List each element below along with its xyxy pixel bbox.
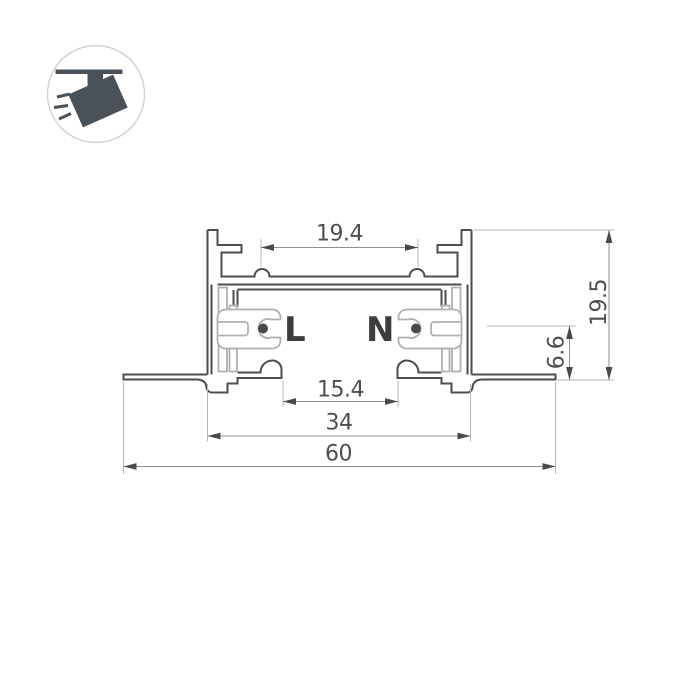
insulator-lower-leg — [230, 349, 238, 372]
wing-foot-and-lip — [124, 361, 282, 393]
conductor-holder — [218, 310, 281, 349]
dimension-value-bottom-opening: 15.4 — [317, 378, 364, 403]
dimension-value-overall-width: 60 — [325, 442, 352, 467]
ceiling-tab — [234, 290, 238, 306]
track-light-badge — [48, 46, 145, 143]
dimension-conductor-height: 6.6 — [487, 326, 576, 380]
technical-drawing-svg: L N 19.4 19.5 6.6 — [0, 0, 700, 700]
dimension-top-slot-width: 19.4 — [261, 222, 418, 268]
dimension-value-overall-height: 19.5 — [587, 279, 612, 326]
conductor-dot — [258, 324, 268, 334]
dimension-bottom-opening: 15.4 — [283, 378, 398, 408]
profile-cross-section: L N — [124, 230, 556, 393]
dimension-value-conductor-height: 6.6 — [545, 336, 570, 370]
conductor-label-live: L — [284, 310, 306, 350]
conductor-label-neutral: N — [366, 310, 394, 350]
product-image: L N 19.4 19.5 6.6 — [0, 0, 700, 700]
dimension-value-top-slot: 19.4 — [316, 222, 363, 247]
profile-half — [124, 230, 340, 393]
dimension-value-housing-width: 34 — [326, 411, 353, 436]
